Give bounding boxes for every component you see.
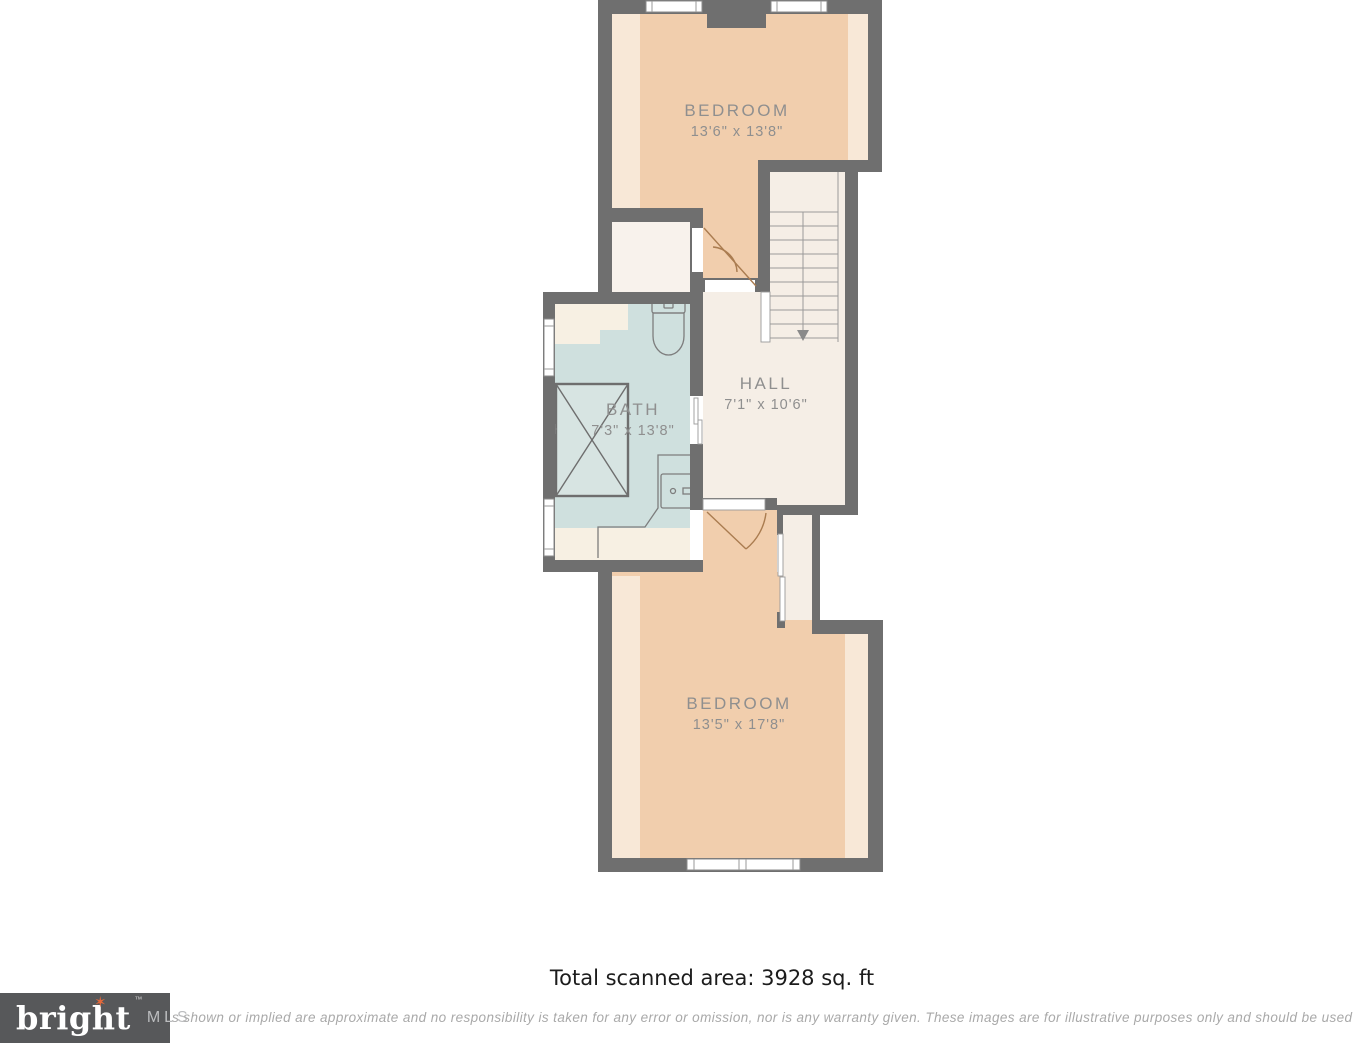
hall-label: HALL 7'1" x 10'6" xyxy=(724,375,807,413)
bedroom-bottom-label: BEDROOM 13'5" x 17'8" xyxy=(686,695,791,733)
bedroom-top-label: BEDROOM 13'6" x 13'8" xyxy=(684,102,789,140)
total-scanned-area: Total scanned area: 3928 sq. ft xyxy=(550,966,874,990)
floorplan-page: BEDROOM 13'6" x 13'8" BATH 7'3" x 13'8" … xyxy=(0,0,1355,1043)
disclaimer-text: s shown or implied are approximate and n… xyxy=(172,1010,1355,1025)
room-dimensions: 7'3" x 13'8" xyxy=(591,424,674,439)
room-dimensions: 7'1" x 10'6" xyxy=(724,398,807,413)
bright-mls-logo: bright✶™ MLS xyxy=(0,993,170,1043)
trademark-symbol: ™ xyxy=(134,996,143,1004)
room-dimensions: 13'6" x 13'8" xyxy=(684,125,789,140)
brand-wordmark: bright✶™ xyxy=(16,1002,131,1034)
bath-label: BATH 7'3" x 13'8" xyxy=(591,401,674,439)
room-name: BATH xyxy=(591,401,674,418)
stairwell-floor xyxy=(770,172,845,342)
room-name: BEDROOM xyxy=(684,102,789,119)
floor-plan-drawing xyxy=(0,0,1355,1043)
room-dimensions: 13'5" x 17'8" xyxy=(686,718,791,733)
brand-spark-icon: ✶ xyxy=(94,995,107,1010)
room-name: BEDROOM xyxy=(686,695,791,712)
room-name: HALL xyxy=(724,375,807,392)
closet-floor xyxy=(612,222,690,292)
